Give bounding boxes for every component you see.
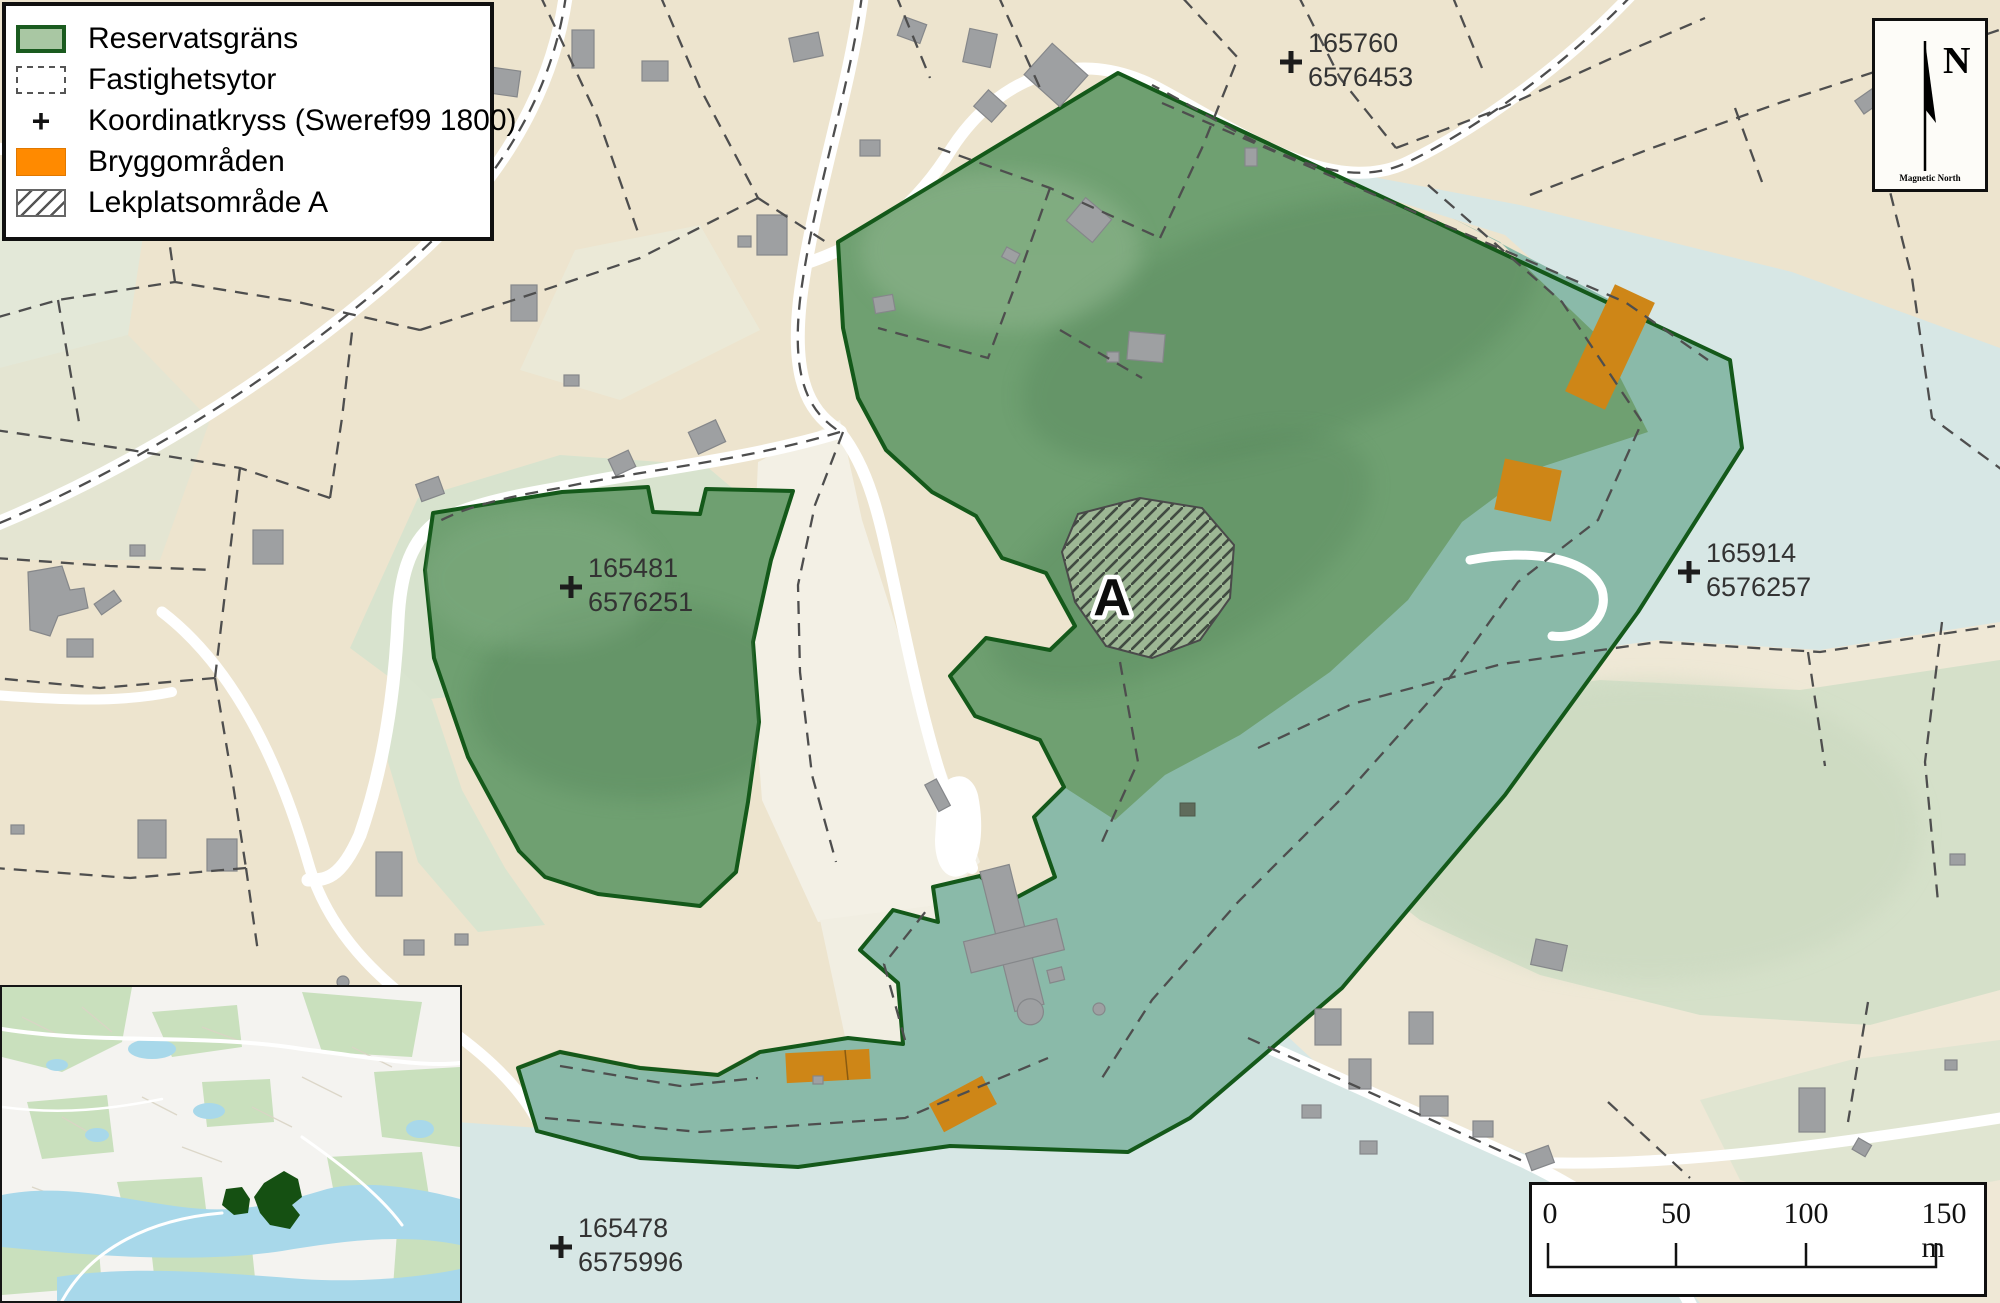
legend-row-property: Fastighetsytor bbox=[16, 59, 480, 100]
cross-swatch-icon: + bbox=[16, 107, 66, 135]
legend-row-reserve: Reservatsgräns bbox=[16, 18, 480, 59]
scale-bar-ticks bbox=[1532, 1185, 1984, 1294]
overview-map-graphic bbox=[2, 987, 460, 1301]
svg-text:6576257: 6576257 bbox=[1706, 572, 1811, 602]
map-page: 165760 6576453 165481 6576251 165914 657… bbox=[0, 0, 2000, 1303]
north-letter: N bbox=[1943, 40, 1970, 82]
hut-building bbox=[1180, 803, 1195, 816]
svg-text:6576251: 6576251 bbox=[588, 587, 693, 617]
legend-label: Lekplatsområde A bbox=[88, 186, 328, 220]
north-arrow-icon: N bbox=[1875, 21, 1985, 189]
scale-bar: 0 50 100 150 m bbox=[1529, 1182, 1987, 1297]
svg-text:6576453: 6576453 bbox=[1308, 62, 1413, 92]
svg-text:165914: 165914 bbox=[1706, 538, 1796, 568]
svg-text:165760: 165760 bbox=[1308, 28, 1398, 58]
legend-label: Bryggområden bbox=[88, 145, 285, 179]
legend-label: Fastighetsytor bbox=[88, 63, 276, 97]
overview-inset-map bbox=[0, 985, 462, 1303]
legend-row-dock: Bryggområden bbox=[16, 141, 480, 182]
svg-text:165481: 165481 bbox=[588, 553, 678, 583]
legend-label: Reservatsgräns bbox=[88, 22, 298, 56]
svg-text:165478: 165478 bbox=[578, 1213, 668, 1243]
legend-label: Koordinatkryss (Sweref99 1800) bbox=[88, 104, 517, 138]
dock-swatch-icon bbox=[16, 148, 66, 176]
legend: Reservatsgräns Fastighetsytor + Koordina… bbox=[2, 2, 494, 241]
reserve-swatch-icon bbox=[16, 25, 66, 53]
legend-row-coordinate: + Koordinatkryss (Sweref99 1800) bbox=[16, 100, 480, 141]
dock-area bbox=[785, 1049, 870, 1083]
north-caption: Magnetic North bbox=[1875, 173, 1985, 183]
playground-label: A bbox=[1093, 569, 1131, 627]
north-arrow-box: N Magnetic North bbox=[1872, 18, 1988, 192]
svg-text:6575996: 6575996 bbox=[578, 1247, 683, 1277]
legend-row-playground: Lekplatsområde A bbox=[16, 182, 480, 223]
property-swatch-icon bbox=[16, 66, 66, 94]
playground-swatch-icon bbox=[16, 189, 66, 217]
